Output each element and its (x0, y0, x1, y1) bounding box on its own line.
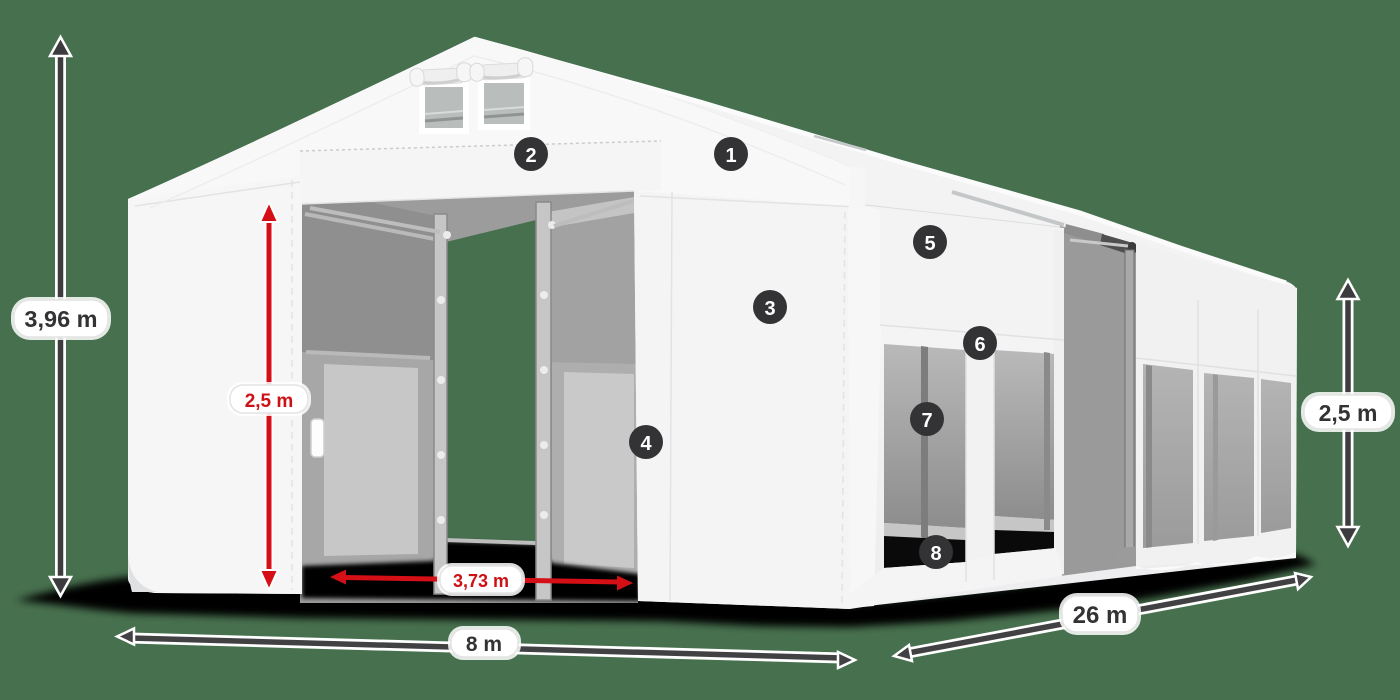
svg-text:8: 8 (930, 543, 941, 565)
svg-text:3,73 m: 3,73 m (453, 571, 509, 591)
svg-text:7: 7 (921, 410, 932, 432)
svg-text:4: 4 (640, 433, 652, 455)
svg-text:26 m: 26 m (1073, 602, 1128, 629)
svg-text:6: 6 (974, 334, 985, 356)
svg-text:2,5 m: 2,5 m (1319, 400, 1378, 426)
svg-text:1: 1 (725, 145, 736, 167)
svg-text:2,5 m: 2,5 m (245, 391, 294, 412)
svg-text:3,96 m: 3,96 m (24, 306, 97, 332)
svg-text:3: 3 (764, 298, 775, 320)
svg-text:2: 2 (525, 145, 536, 167)
svg-text:5: 5 (924, 233, 935, 255)
svg-text:8 m: 8 m (466, 633, 502, 656)
